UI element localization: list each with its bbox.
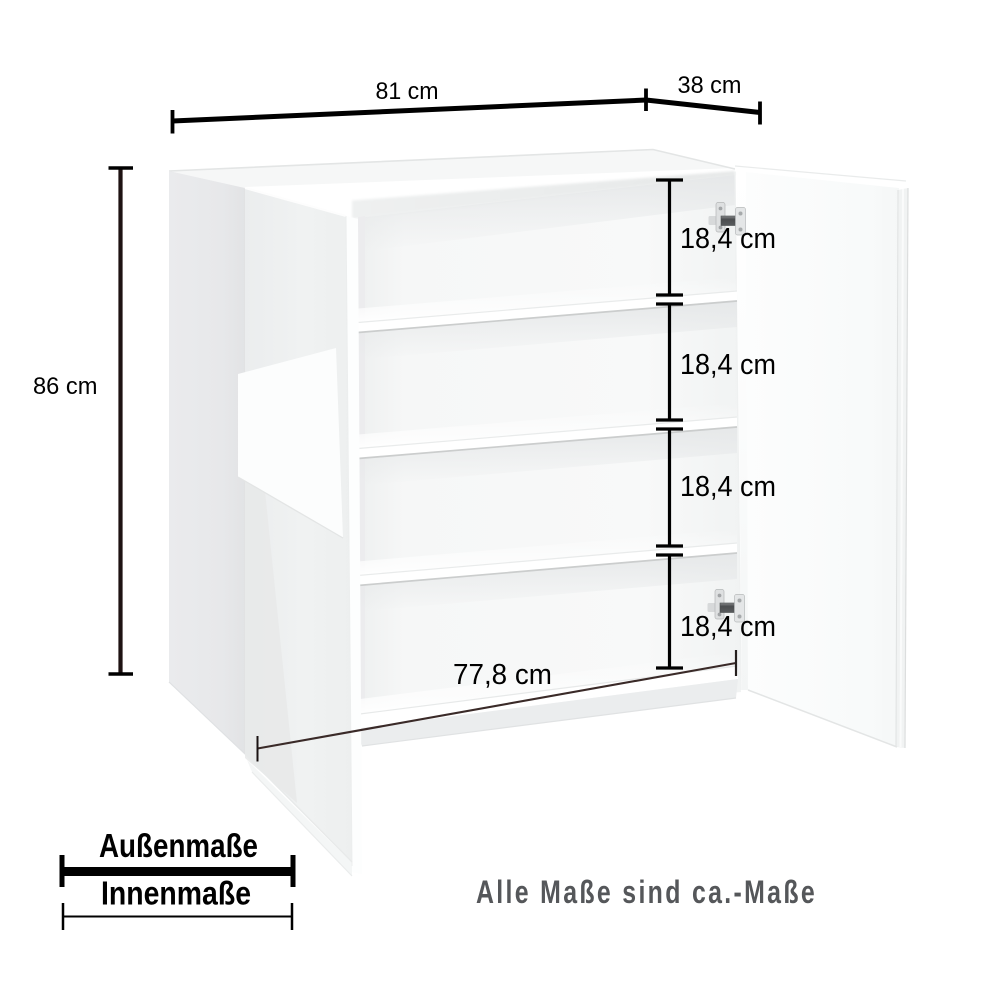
svg-text:77,8 cm: 77,8 cm bbox=[453, 659, 552, 691]
svg-text:86 cm: 86 cm bbox=[33, 373, 98, 400]
svg-text:38 cm: 38 cm bbox=[678, 72, 742, 99]
svg-text:18,4 cm: 18,4 cm bbox=[680, 471, 776, 503]
svg-text:18,4 cm: 18,4 cm bbox=[680, 349, 776, 381]
svg-text:Innenmaße: Innenmaße bbox=[101, 875, 251, 912]
svg-text:18,4 cm: 18,4 cm bbox=[680, 223, 776, 255]
svg-text:Außenmaße: Außenmaße bbox=[99, 827, 258, 864]
svg-text:81 cm: 81 cm bbox=[376, 78, 439, 105]
svg-text:Alle Maße sind ca.-Maße: Alle Maße sind ca.-Maße bbox=[476, 874, 817, 910]
svg-text:18,4 cm: 18,4 cm bbox=[680, 611, 776, 643]
